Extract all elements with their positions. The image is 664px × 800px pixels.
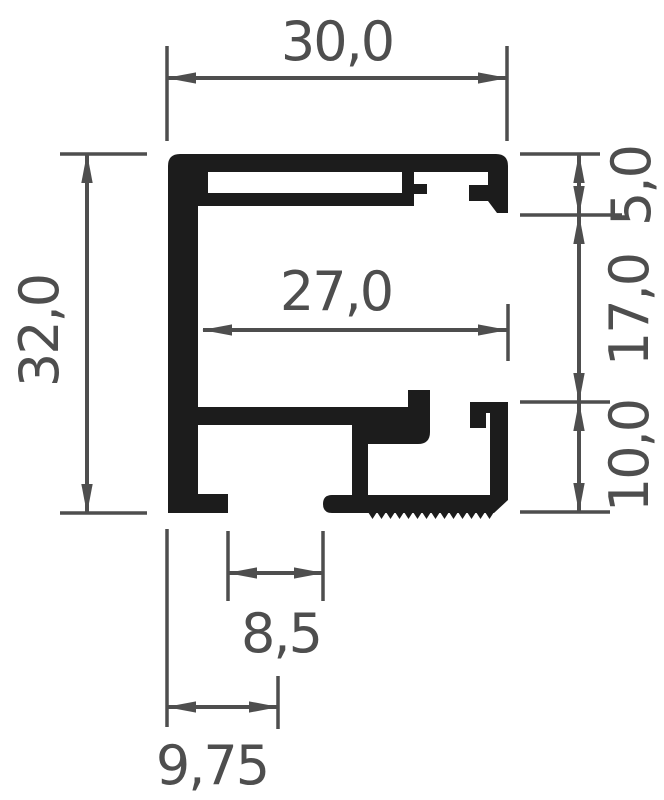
profile-bottom-stem bbox=[352, 424, 368, 496]
label-overall-width: 30,0 bbox=[281, 10, 393, 73]
label-top-channel: 5,0 bbox=[600, 146, 663, 226]
profile-bottom-bar bbox=[323, 495, 508, 513]
label-overall-height: 32,0 bbox=[8, 275, 71, 387]
extension-lines bbox=[60, 46, 622, 729]
technical-drawing: 30,0 32,0 27,0 5,0 17,0 10,0 8,5 9,75 bbox=[0, 0, 664, 800]
label-inner-width: 27,0 bbox=[280, 260, 392, 323]
label-slot-offset: 9,75 bbox=[156, 734, 268, 797]
label-middle-height: 17,0 bbox=[598, 254, 661, 366]
drawing-canvas: 30,0 32,0 27,0 5,0 17,0 10,0 8,5 9,75 bbox=[0, 0, 664, 800]
label-slot-width: 8,5 bbox=[241, 602, 321, 665]
profile-bottom-right-wall bbox=[490, 402, 508, 496]
profile-upper-body bbox=[168, 154, 508, 513]
profile-serrations bbox=[368, 512, 494, 519]
profile-bottom-top-wall bbox=[198, 390, 430, 425]
profile-cross-section bbox=[168, 154, 508, 519]
label-bottom-channel: 10,0 bbox=[598, 400, 661, 512]
